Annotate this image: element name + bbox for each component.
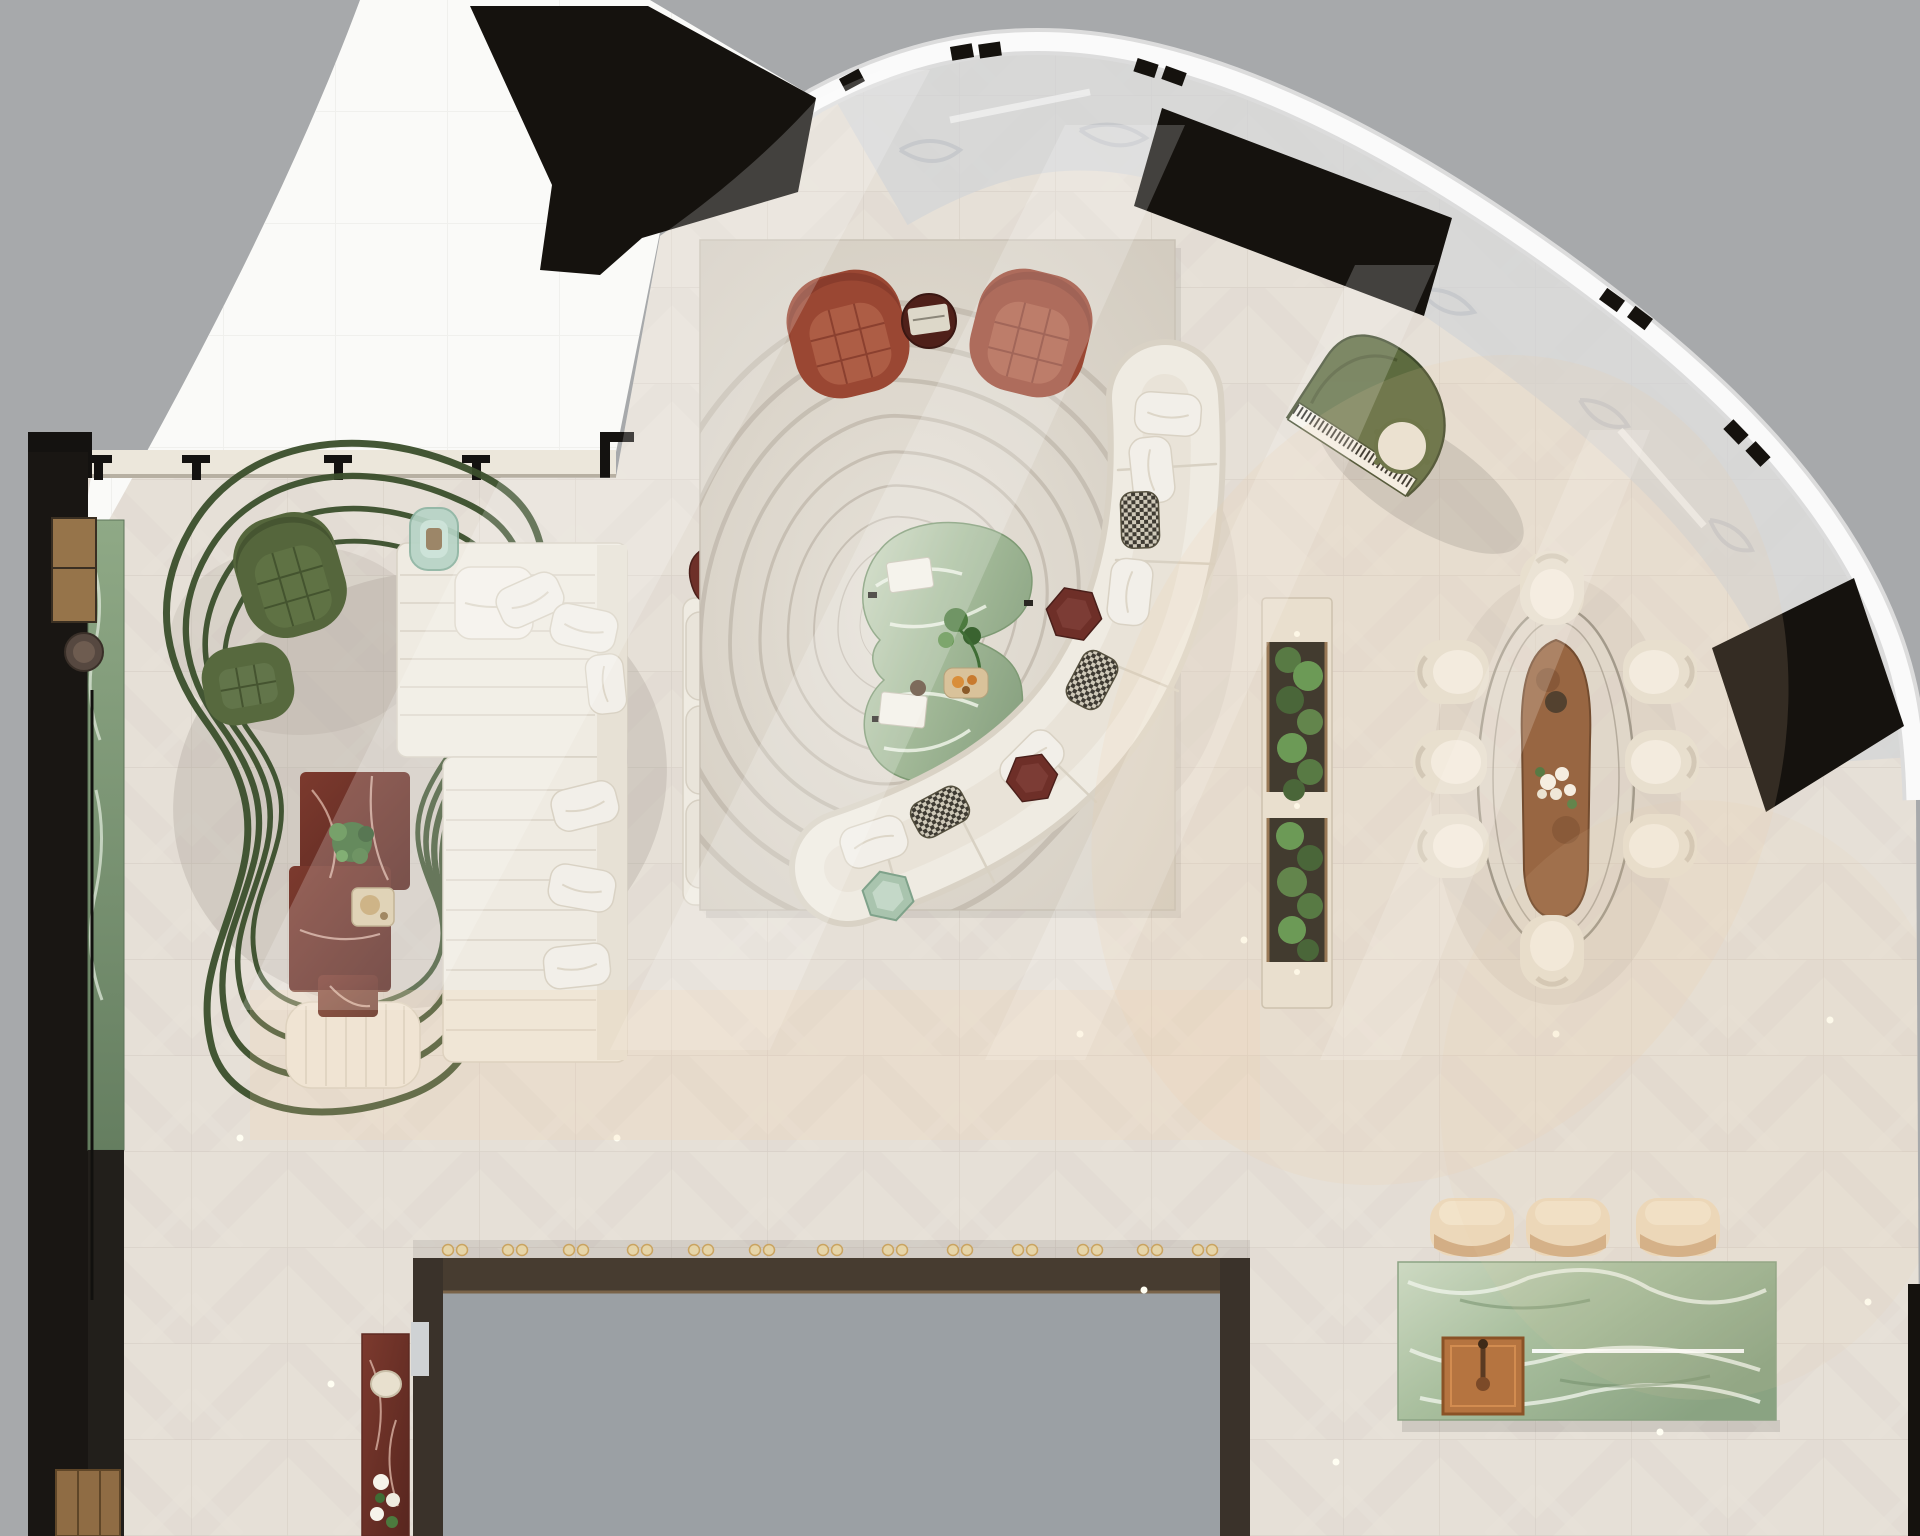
round-marble-side-table (902, 294, 956, 348)
bronze-cabinet (56, 1470, 120, 1536)
void-opening (413, 1258, 1250, 1536)
copper-sink (1443, 1338, 1523, 1414)
red-console (362, 1334, 409, 1536)
console-bowl (371, 1371, 401, 1397)
mint-glass-side-table (410, 508, 458, 570)
right-wall-sliver (1908, 1284, 1920, 1536)
frame-bracket (411, 1322, 429, 1376)
floor-plan-render (0, 0, 1920, 1536)
bronze-shelf (52, 518, 96, 622)
void-frame-top (413, 1258, 1250, 1292)
bar-void (411, 1240, 1250, 1536)
media-wall (28, 452, 124, 1536)
